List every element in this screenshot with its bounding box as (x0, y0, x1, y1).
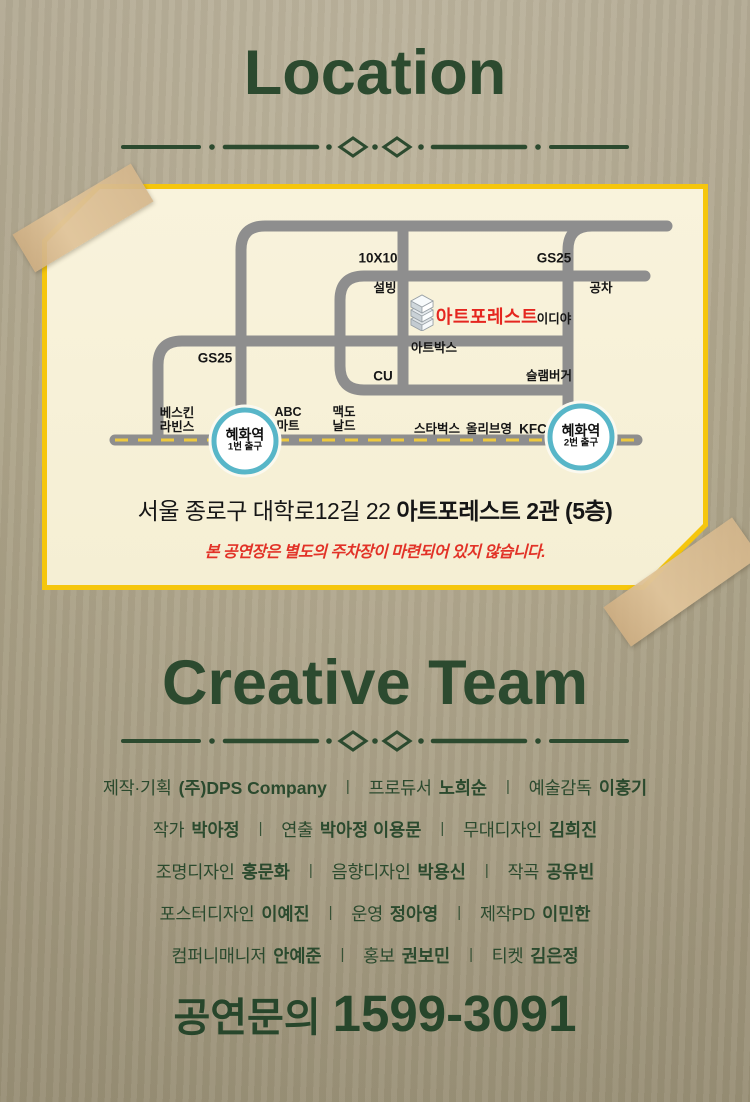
credit-separator: | (346, 778, 350, 795)
credit-name: 이예진 (261, 901, 309, 926)
creative-team-title: Creative Team (0, 652, 750, 715)
credit-separator: | (485, 862, 489, 879)
map-poi: 설빙 (373, 281, 396, 295)
credit-role: 프로듀서 (369, 775, 432, 800)
credit-separator: | (259, 820, 263, 837)
station-exit: 2번 출구 (564, 438, 598, 450)
credit-separator: | (329, 904, 333, 921)
map-poi: GS25 (198, 350, 233, 365)
credit-role: 제작·기획 (103, 775, 172, 800)
subway-exit-badge: 혜화역1번 출구 (212, 408, 279, 475)
map-paper: 10X10GS25설빙공차아트포레스트이디야아트박스GS25CU슬램버거베스킨 … (47, 189, 703, 585)
credit-separator: | (457, 904, 461, 921)
credit-row: 컴퍼니매니저안예준|홍보권보민|티켓김은정 (0, 934, 750, 976)
address-venue: 아트포레스트 2관 (5층) (396, 498, 612, 524)
credit-role: 예술감독 (529, 775, 592, 800)
credit-name: 이홍기 (599, 775, 647, 800)
credit-row: 조명디자인홍문화|음향디자인박용신|작곡공유빈 (0, 850, 750, 892)
credit-name: 권보민 (402, 943, 450, 968)
credit-name: 박아정 (191, 817, 239, 842)
credit-separator: | (469, 946, 473, 963)
credit-role: 조명디자인 (156, 859, 235, 884)
map-poi: CU (373, 368, 393, 383)
credit-role: 음향디자인 (332, 859, 411, 884)
credits-list: 제작·기획(주)DPS Company|프로듀서노희순|예술감독이홍기작가박아정… (0, 766, 750, 976)
map-poi: 아트박스 (411, 341, 457, 355)
map-poi: 아트포레스트 (436, 307, 538, 327)
creative-team-divider-ornament (115, 728, 635, 754)
credit-role: 연출 (281, 817, 313, 842)
contact: 공연문의 1599-3091 (0, 984, 750, 1043)
map-poi: KFC (519, 421, 547, 436)
map-poi: ABC 마트 (274, 405, 301, 433)
credit-separator: | (440, 820, 444, 837)
venue-map: 10X10GS25설빙공차아트포레스트이디야아트박스GS25CU슬램버거베스킨 … (55, 192, 695, 492)
credit-name: 홍문화 (242, 859, 290, 884)
station-name: 혜화역 (562, 424, 601, 438)
credit-row: 작가박아정|연출박아정 이용문|무대디자인김희진 (0, 808, 750, 850)
credit-role: 컴퍼니매니저 (171, 943, 266, 968)
venue-building-icon (405, 291, 439, 331)
map-poi: 맥도 날드 (332, 405, 355, 433)
credit-name: 김은정 (530, 943, 578, 968)
poster-page: Location (0, 0, 750, 1102)
credit-separator: | (506, 778, 510, 795)
map-box: 10X10GS25설빙공차아트포레스트이디야아트박스GS25CU슬램버거베스킨 … (42, 184, 708, 590)
address-street: 서울 종로구 대학로12길 22 (138, 498, 391, 524)
credit-role: 포스터디자인 (160, 901, 255, 926)
map-poi: 10X10 (358, 250, 397, 265)
credit-name: 김희진 (549, 817, 597, 842)
credit-role: 작가 (153, 817, 185, 842)
credit-role: 홍보 (363, 943, 395, 968)
credit-name: 정아영 (390, 901, 438, 926)
location-divider-ornament (115, 134, 635, 160)
map-poi: 스타벅스 (414, 422, 460, 436)
credit-separator: | (309, 862, 313, 879)
credit-name: (주)DPS Company (179, 775, 327, 800)
credit-name: 공유빈 (546, 859, 594, 884)
credit-row: 포스터디자인이예진|운영정아영|제작PD이민한 (0, 892, 750, 934)
map-poi: 슬램버거 (526, 369, 572, 383)
credit-row: 제작·기획(주)DPS Company|프로듀서노희순|예술감독이홍기 (0, 766, 750, 808)
credit-role: 운영 (351, 901, 383, 926)
credit-role: 작곡 (507, 859, 539, 884)
credit-name: 노희순 (439, 775, 487, 800)
station-name: 혜화역 (226, 428, 265, 442)
location-title: Location (0, 42, 750, 105)
map-poi: 이디야 (537, 312, 572, 326)
credit-role: 무대디자인 (463, 817, 542, 842)
map-poi: 베스킨 라빈스 (160, 406, 195, 434)
credit-role: 제작PD (480, 901, 535, 926)
subway-exit-badge: 혜화역2번 출구 (548, 404, 615, 471)
map-poi: 올리브영 (466, 422, 512, 436)
contact-phone-number: 1599-3091 (333, 984, 577, 1043)
credit-name: 안예준 (273, 943, 321, 968)
map-poi: GS25 (537, 250, 572, 265)
venue-address: 서울 종로구 대학로12길 22 아트포레스트 2관 (5층) (47, 492, 703, 526)
credit-name: 이민한 (542, 901, 590, 926)
credit-separator: | (341, 946, 345, 963)
credit-name: 박용신 (418, 859, 466, 884)
station-exit: 1번 출구 (228, 442, 262, 454)
credit-name: 박아정 이용문 (320, 817, 421, 842)
parking-notice: 본 공연장은 별도의 주차장이 마련되어 있지 않습니다. (47, 538, 703, 562)
credit-role: 티켓 (492, 943, 524, 968)
contact-label: 공연문의 (173, 985, 320, 1043)
map-poi: 공차 (589, 281, 612, 295)
